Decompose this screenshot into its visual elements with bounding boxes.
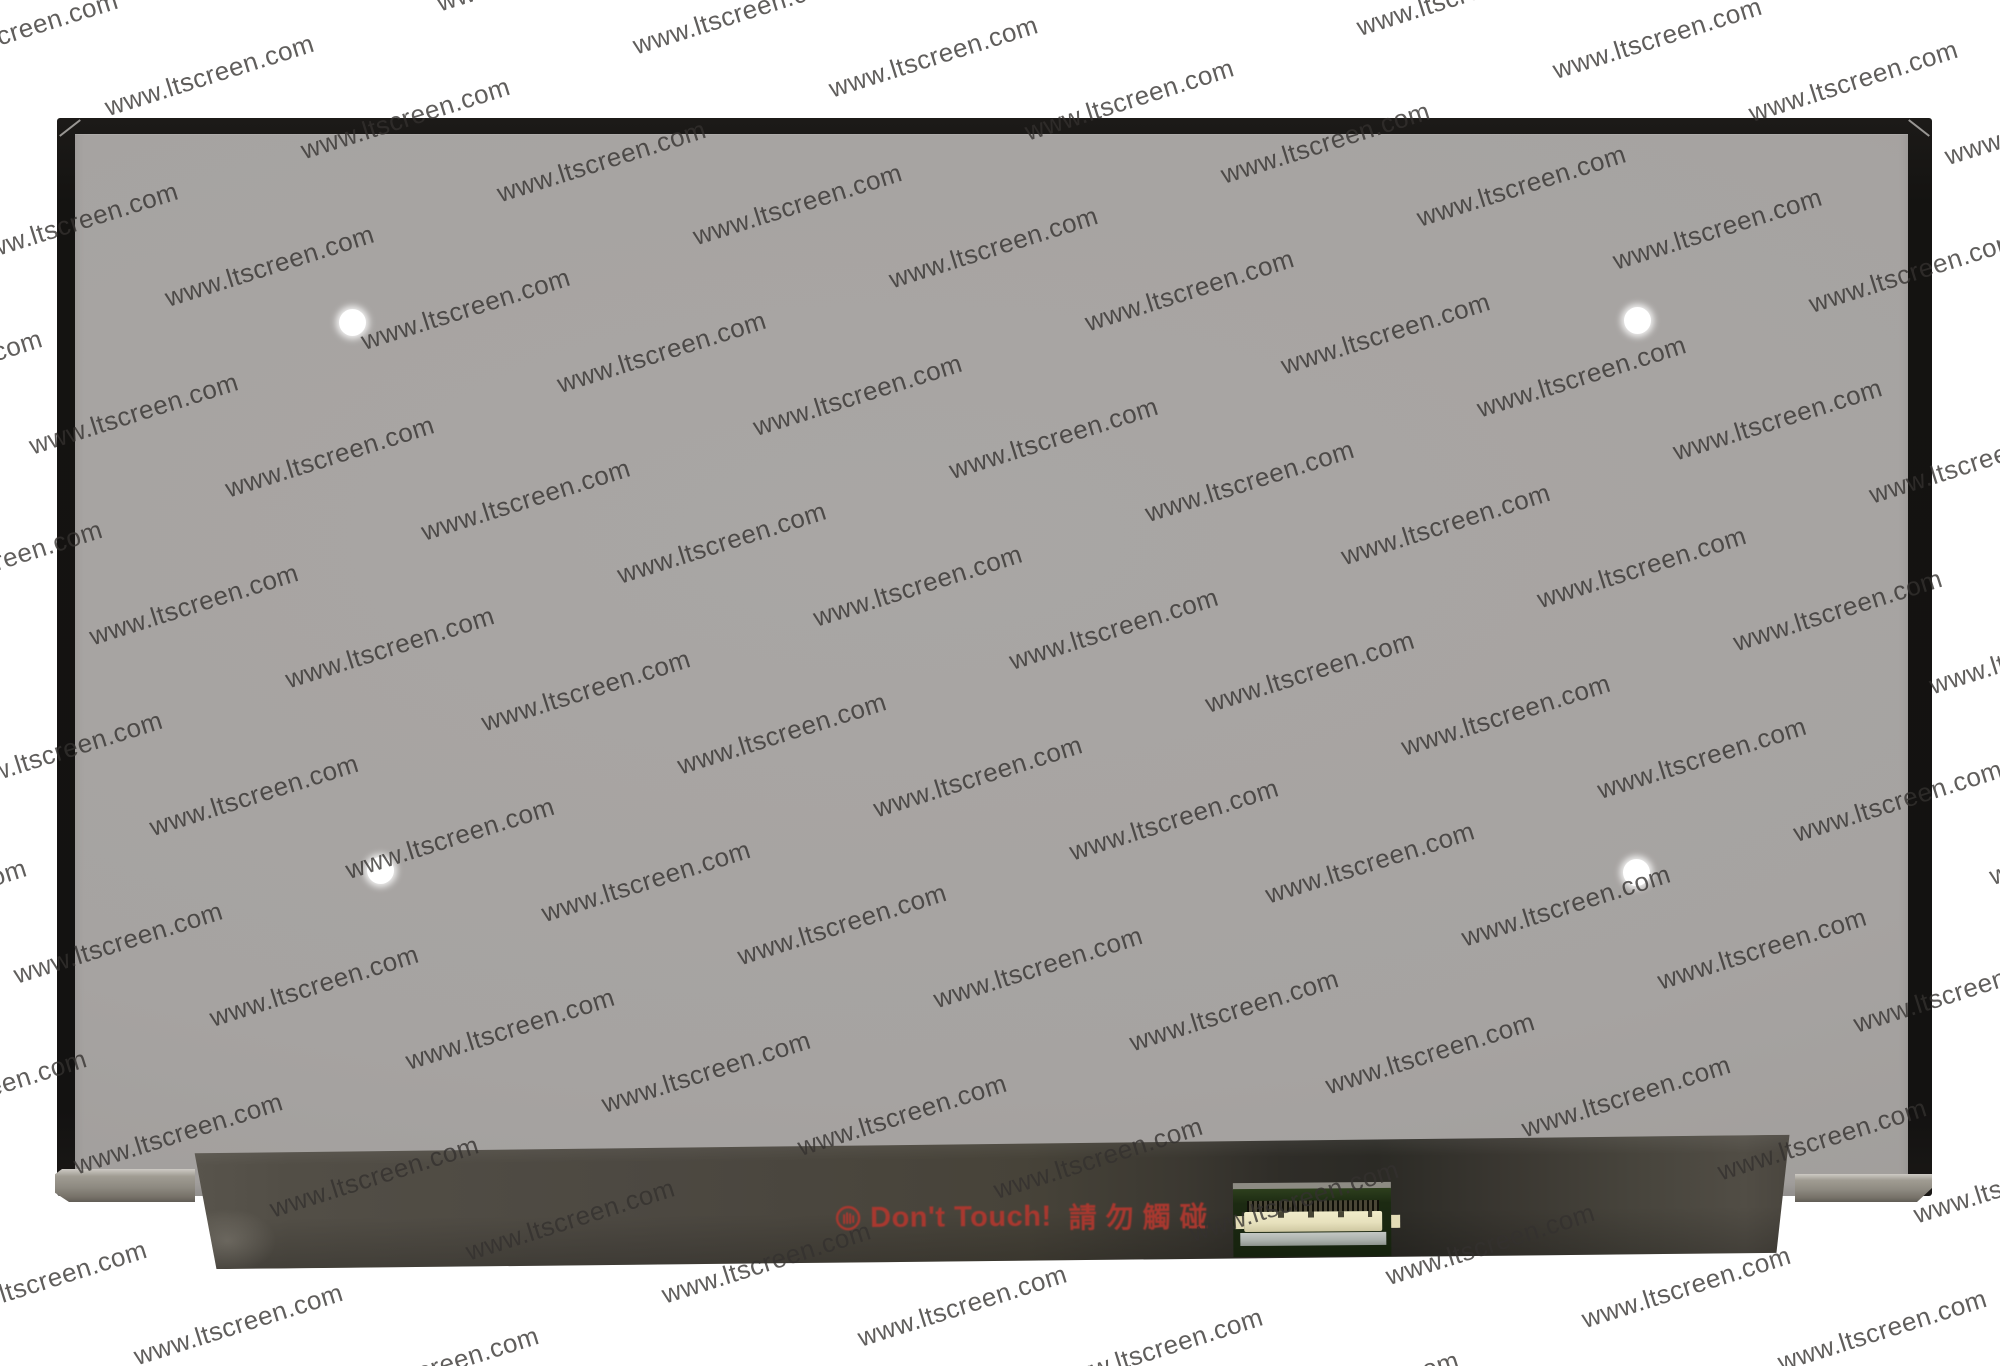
mounting-bracket-right (1795, 1174, 1932, 1202)
screw-hole-dot (1623, 859, 1650, 886)
mounting-bracket-left (55, 1169, 195, 1202)
warning-text-english: Don't Touch! (870, 1200, 1052, 1234)
product-photo-canvas: Don't Touch! 請勿觸碰 www.ltscreen.comwww.lt… (0, 0, 2000, 1366)
connector-pcb (1233, 1188, 1392, 1257)
screw-hole-dot (1624, 307, 1651, 334)
bottom-flex-cover: Don't Touch! 請勿觸碰 (193, 1133, 1794, 1272)
edp-connector (1244, 1211, 1382, 1232)
screw-hole-dot (367, 857, 394, 884)
warning-text-chinese: 請勿觸碰 (1068, 1195, 1216, 1236)
connector-metal-shield (1240, 1232, 1386, 1246)
warning-label: Don't Touch! 請勿觸碰 (835, 1197, 1217, 1236)
no-touch-hand-icon (835, 1205, 861, 1231)
screw-hole-dot (339, 309, 366, 336)
